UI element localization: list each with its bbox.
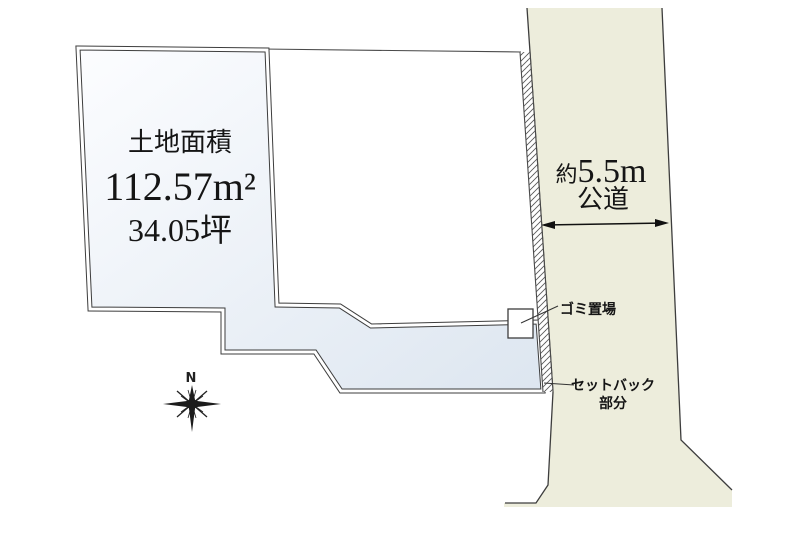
compass: N xyxy=(163,371,221,432)
land-plot-diagram: 土地面積 112.57m² 34.05坪 約5.5m 公道 ゴミ置場 セットバッ… xyxy=(0,0,800,533)
road-width-prefix: 約 xyxy=(556,162,578,187)
land-area-tsubo: 34.05坪 xyxy=(128,212,232,248)
setback-label-line2: 部分 xyxy=(599,395,627,412)
compass-star-icon xyxy=(163,385,221,432)
garbage-label: ゴミ置場 xyxy=(560,301,616,318)
land-area-square-meters: 112.57m² xyxy=(104,164,256,209)
compass-north-label: N xyxy=(186,371,197,386)
north-boundary-line xyxy=(262,49,521,52)
land-area-title: 土地面積 xyxy=(128,128,232,157)
setback-label-line1: セットバック xyxy=(571,378,655,394)
garbage-box xyxy=(508,309,533,338)
road-type-label: 公道 xyxy=(577,185,629,214)
diagram-svg: 土地面積 112.57m² 34.05坪 約5.5m 公道 ゴミ置場 セットバッ… xyxy=(0,0,800,533)
